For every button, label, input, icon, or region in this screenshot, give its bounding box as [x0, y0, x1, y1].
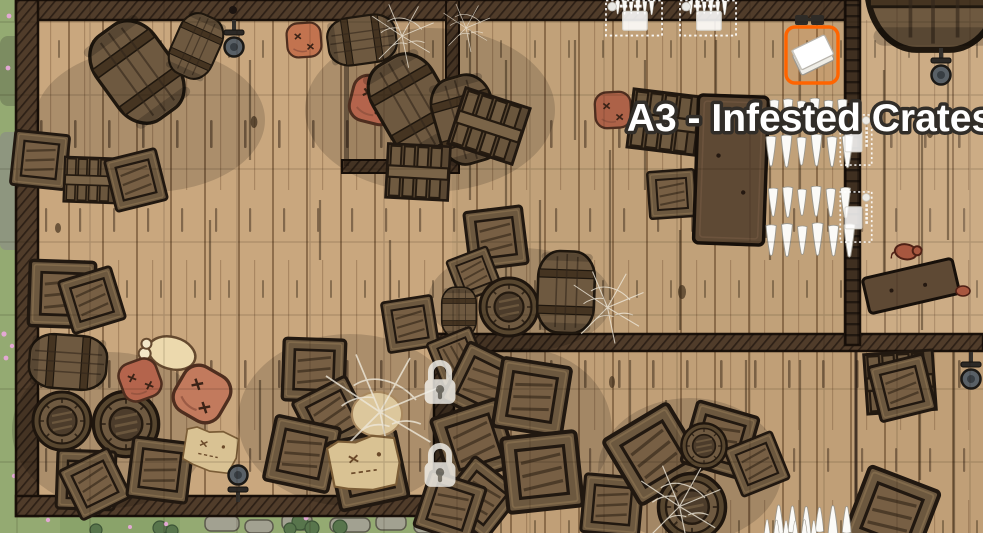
crate	[10, 130, 69, 189]
map-canvas[interactable]: A3 - Infested Crates	[0, 0, 983, 533]
debris	[956, 286, 970, 296]
barrel-top	[658, 473, 725, 533]
barrel-large	[867, 0, 983, 50]
barrel-top	[33, 392, 91, 450]
crate	[868, 354, 936, 422]
barrel-top	[480, 278, 538, 336]
barrel	[28, 332, 109, 391]
crate	[501, 431, 583, 513]
wall-segment-ladder	[845, 0, 860, 345]
map-region-label: A3 - Infested Crates	[627, 97, 983, 140]
barrel	[536, 250, 595, 333]
crate	[127, 437, 194, 504]
crate	[492, 357, 571, 436]
crate	[104, 148, 167, 211]
selected-note-token[interactable]	[786, 27, 838, 83]
crate	[647, 169, 697, 219]
parchment-map	[326, 432, 403, 495]
pallet	[386, 143, 451, 200]
vtt-viewport[interactable]: A3 - Infested Crates	[0, 0, 983, 533]
sack	[286, 22, 322, 58]
